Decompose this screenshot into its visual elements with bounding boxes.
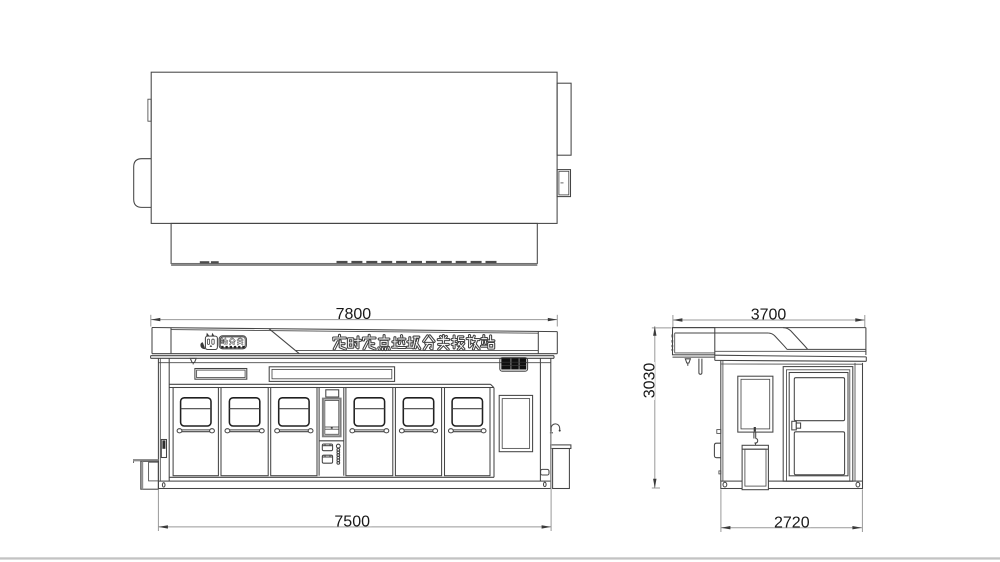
svg-text:3700: 3700: [751, 307, 787, 324]
svg-text:7800: 7800: [336, 306, 372, 323]
svg-text:3030: 3030: [641, 363, 658, 399]
svg-text:2720: 2720: [774, 514, 810, 531]
svg-text:7500: 7500: [334, 514, 370, 531]
